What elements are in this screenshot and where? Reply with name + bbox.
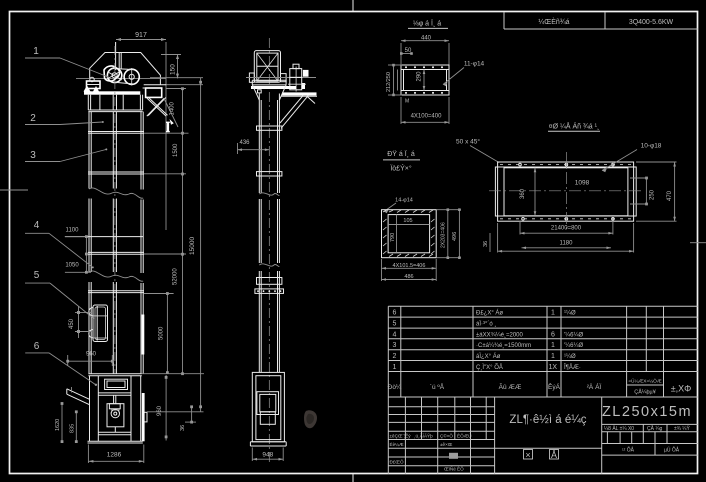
svg-text:1286: 1286 (107, 452, 122, 459)
svg-text:ZL250x15m: ZL250x15m (602, 404, 692, 420)
svg-text:5: 5 (34, 270, 40, 281)
svg-text:×: × (525, 450, 530, 460)
svg-text:Ïò£Ý×°: Ïò£Ý×° (390, 164, 411, 173)
svg-text:436: 436 (239, 140, 250, 146)
svg-text:960: 960 (86, 352, 97, 358)
svg-text:290: 290 (417, 71, 423, 82)
svg-text:áÏ·³°´ó ¸: áÏ·³°´ó ¸ (476, 321, 496, 328)
svg-text:960: 960 (157, 405, 163, 416)
svg-text:Ãû ÆÆ: Ãû ÆÆ (499, 382, 522, 391)
svg-text:52000: 52000 (173, 268, 179, 285)
svg-text:±êÇŒ´¦Êý: ±êÇŒ´¦Êý (390, 432, 412, 439)
svg-text:¼8 ÄL ±¼ X0: ¼8 ÄL ±¼ X0 (604, 425, 634, 432)
svg-text:1X: 1X (549, 364, 558, 371)
svg-text:1098: 1098 (575, 180, 590, 187)
svg-text:250: 250 (650, 189, 656, 200)
svg-text:3: 3 (30, 150, 36, 161)
svg-text:±¾ ¼Ÿ: ±¾ ¼Ÿ (674, 425, 690, 432)
svg-text:2X203=406: 2X203=406 (441, 222, 447, 248)
svg-text:¹¼Ø: ¹¼Ø (564, 311, 576, 317)
svg-text:3Q400-5.6KW: 3Q400-5.6KW (629, 19, 674, 26)
svg-text:1620: 1620 (55, 419, 61, 431)
svg-text:15000: 15000 (189, 237, 196, 255)
svg-text:¹¼Ø: ¹¼Ø (564, 354, 576, 360)
svg-text:6: 6 (393, 310, 397, 317)
svg-text:917: 917 (135, 32, 147, 39)
svg-text:ZL¶·ê½ì á é¼ç: ZL¶·ê½ì á é¼ç (509, 414, 586, 426)
svg-text:·C±á¼¾é¸=1500mm: ·C±á¼¾é¸=1500mm (476, 343, 531, 349)
svg-text:ÐŸ á Ï¸ á: ÐŸ á Ï¸ á (387, 150, 415, 158)
svg-text:1100: 1100 (66, 228, 80, 234)
svg-text:150: 150 (170, 64, 177, 75)
svg-text:948: 948 (262, 452, 273, 459)
svg-text:5: 5 (393, 321, 397, 328)
svg-text:36: 36 (180, 425, 186, 431)
svg-text:5000: 5000 (159, 326, 165, 340)
svg-text:±,XΦ: ±,XΦ (671, 384, 692, 394)
svg-text:'¼6¼Ø: '¼6¼Ø (564, 343, 583, 349)
svg-text:1400: 1400 (170, 101, 176, 115)
svg-text:M: M (405, 99, 409, 105)
svg-text:1: 1 (551, 342, 555, 349)
svg-text:⅛φ á Ï¸ á: ⅛φ á Ï¸ á (413, 20, 441, 28)
svg-text:6: 6 (34, 341, 40, 352)
svg-text:¤Ø ¼Å Áñ ¾á ¹¸: ¤Ø ¼Å Áñ ¾á ¹¸ (549, 122, 600, 131)
svg-text:ÇÅ ¼g: ÇÅ ¼g (647, 425, 663, 432)
svg-text:±ê×Œ: ±ê×Œ (440, 442, 453, 447)
svg-text:ŒìÑé ÈÕ: ŒìÑé ÈÕ (444, 466, 464, 472)
svg-text:1500: 1500 (173, 143, 179, 157)
svg-text:Éè¼Æ: Éè¼Æ (390, 441, 404, 447)
svg-text:1: 1 (33, 46, 39, 57)
svg-text:21400=800: 21400=800 (551, 226, 582, 232)
svg-text:14-φ14: 14-φ14 (395, 198, 413, 204)
svg-text:Å: Å (551, 450, 557, 460)
svg-text:Ç©×Ö: Ç©×Ö (440, 433, 453, 439)
svg-text:«Ü¼ÆX«¼ÒÆ: «Ü¼ÆX«¼ÒÆ (628, 378, 662, 385)
svg-text:²Ä ÁÏ: ²Ä ÁÏ (587, 382, 602, 391)
svg-text:10-φ18: 10-φ18 (641, 143, 662, 150)
svg-text:496: 496 (452, 232, 458, 241)
svg-text:ÊýÁ: ÊýÁ (548, 382, 561, 391)
svg-text:´ú ºÅ: ´ú ºÅ (430, 382, 445, 391)
svg-text:470: 470 (667, 190, 673, 201)
svg-text:3: 3 (393, 342, 397, 349)
svg-text:4X100=400: 4X100=400 (411, 114, 443, 120)
svg-text:µÚ ÕÅ: µÚ ÕÅ (664, 447, 680, 454)
svg-text:±áXX¾¼é¸=2000: ±áXX¾¼é¸=2000 (476, 332, 523, 338)
svg-text:1: 1 (551, 310, 555, 317)
svg-text:1: 1 (551, 353, 555, 360)
svg-text:2: 2 (30, 113, 36, 124)
svg-text:6: 6 (551, 331, 555, 338)
svg-text:¹² ÕÅ: ¹² ÕÅ (622, 447, 635, 454)
svg-text:Ðò¼: Ðò¼ (388, 384, 402, 391)
svg-text:1050: 1050 (65, 263, 79, 269)
svg-text:450: 450 (69, 318, 75, 329)
svg-text:105: 105 (403, 218, 412, 224)
svg-text:Î¶ÅÆ·: Î¶ÅÆ· (563, 364, 581, 371)
svg-text:Ð£¿X° Áø: Ð£¿X° Áø (476, 310, 503, 317)
svg-text:áÏ¿X° Áø: áÏ¿X° Áø (476, 353, 501, 360)
svg-text:1180: 1180 (560, 240, 574, 246)
svg-text:ÈÕÆÚ: ÈÕÆÚ (457, 433, 472, 439)
svg-text:Ð£ŒÔ: Ð£ŒÔ (390, 459, 404, 465)
svg-text:11-φ14: 11-φ14 (464, 61, 485, 68)
svg-text:4: 4 (393, 331, 397, 338)
svg-text:2: 2 (393, 353, 397, 360)
svg-text:212/250: 212/250 (386, 72, 392, 92)
svg-text:36: 36 (483, 241, 489, 247)
svg-text:835: 835 (70, 424, 76, 433)
svg-text:4: 4 (34, 220, 40, 231)
svg-text:¸ü¸ÄÎÄŸþ: ¸ü¸ÄÎÄŸþ (414, 433, 433, 440)
svg-text:50 x 45°: 50 x 45° (456, 138, 480, 146)
svg-text:ÇÅ¼þµ¥: ÇÅ¼þµ¥ (634, 389, 656, 396)
svg-text:360: 360 (520, 188, 526, 199)
svg-text:'¼6¼Ø: '¼6¼Ø (564, 332, 583, 338)
svg-text:Ç¸Ì"X° ÕÅ: Ç¸Ì"X° ÕÅ (476, 364, 503, 371)
svg-text:¼ŒÈñ¾á: ¼ŒÈñ¾á (538, 17, 569, 26)
svg-text:790: 790 (390, 233, 396, 242)
svg-text:1: 1 (393, 364, 397, 371)
